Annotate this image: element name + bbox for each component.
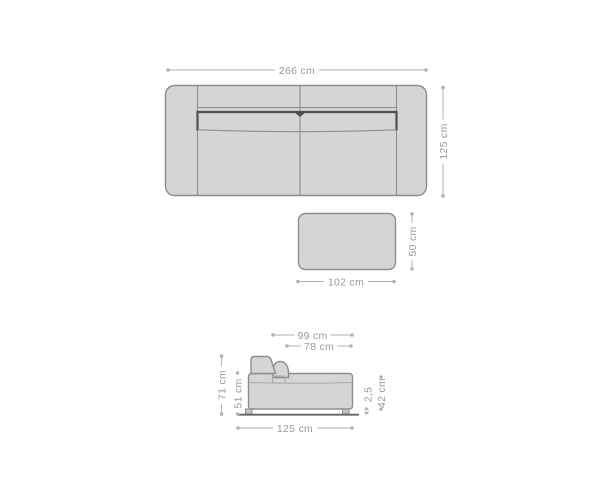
dim-top-width: 266 cm <box>166 64 428 77</box>
dim-side-length: 125 cm <box>236 422 354 435</box>
dim-ottoman-depth-label: 50 cm <box>407 226 419 256</box>
ottoman-outline <box>299 214 396 270</box>
dim-side-overall-depth-end-left <box>271 333 275 337</box>
dim-side-seat-depth-end-left <box>285 344 289 348</box>
dim-side-seat-depth-end-right <box>349 344 353 348</box>
dim-ottoman-width: 102 cm <box>296 275 396 288</box>
dim-top-width-end-right <box>424 68 428 72</box>
dim-top-depth-end-bottom <box>441 194 445 198</box>
furniture-dimension-diagram: 266 cm 125 cm 50 cm 102 cm <box>0 0 600 500</box>
sofa-top-outline <box>166 86 427 196</box>
diagram-svg: 266 cm 125 cm 50 cm 102 cm <box>0 0 600 500</box>
dim-side-overall-depth-end-right <box>350 333 354 337</box>
dim-side-length-label: 125 cm <box>277 423 313 435</box>
dim-side-back-height-end-top <box>220 354 224 358</box>
dim-side-arm-height-label: 51 cm <box>232 378 244 408</box>
sofa-side-body <box>249 374 353 410</box>
dim-ottoman-depth-end-bottom <box>410 267 414 271</box>
sofa-side-view <box>237 357 359 415</box>
dim-top-depth: 125 cm <box>437 86 450 198</box>
dim-top-width-label: 266 cm <box>279 65 315 77</box>
dim-side-length-end-right <box>350 426 354 430</box>
dim-side-back-height-label: 71 cm <box>216 370 228 400</box>
dim-top-depth-end-top <box>441 86 445 90</box>
dim-side-seat-height: 42 cm <box>375 375 388 411</box>
dim-side-back-height-end-bottom <box>220 412 224 416</box>
sofa-side-leg-right <box>343 409 350 414</box>
dim-side-length-end-left <box>236 426 240 430</box>
dim-side-back-height: 71 cm <box>215 354 228 416</box>
dim-side-seat-height-label: 42 cm <box>376 378 388 408</box>
sofa-side-leg-left <box>246 409 253 414</box>
dim-ottoman-width-end-right <box>392 280 396 284</box>
dim-side-leg-height-arrow-down <box>364 412 369 416</box>
dim-ottoman-depth-end-top <box>410 212 414 216</box>
sofa-top-view <box>166 86 427 196</box>
dim-side-leg-height-label: 2,5 <box>362 387 374 403</box>
dim-side-leg-height: 2,5 <box>362 387 374 415</box>
dim-side-arm-height: 51 cm <box>231 371 244 416</box>
dim-side-leg-height-arrow-up <box>364 407 369 411</box>
dim-ottoman-depth: 50 cm <box>406 212 419 271</box>
dim-top-width-end-left <box>166 68 170 72</box>
dim-side-arm-height-end-bottom <box>236 412 240 416</box>
dim-ottoman-width-label: 102 cm <box>328 276 364 288</box>
dim-side-arm-height-end-top <box>236 371 240 375</box>
dim-ottoman-width-end-left <box>296 280 300 284</box>
sofa-side-backrest <box>251 357 276 374</box>
dim-side-seat-depth-label: 78 cm <box>304 341 334 353</box>
dim-top-depth-label: 125 cm <box>438 123 450 159</box>
ottoman-top-view <box>299 214 396 270</box>
